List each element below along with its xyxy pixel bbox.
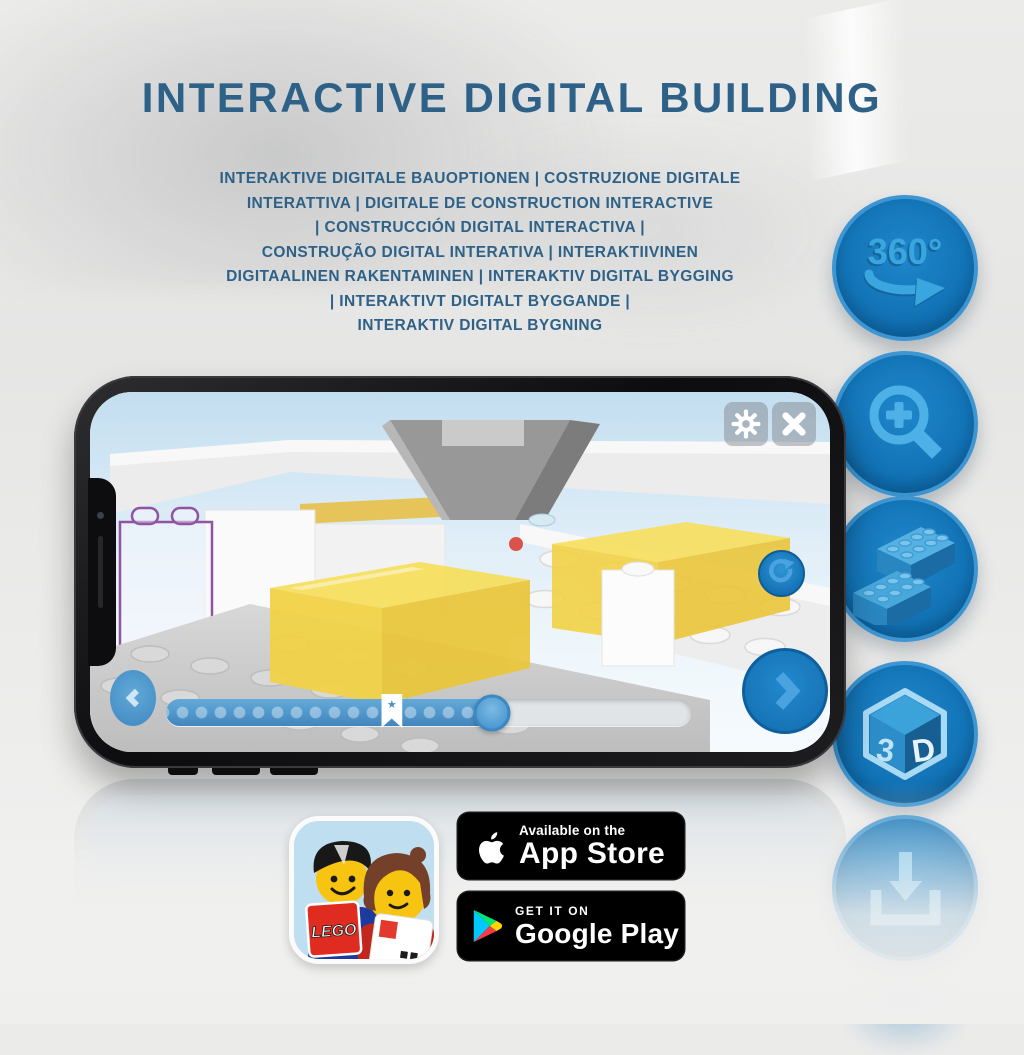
lego-app-icon: LEGO [289, 816, 439, 964]
slider-fill [166, 699, 492, 726]
subtitle-line: DIGITAALINEN RAKENTAMINEN | INTERAKTIV D… [62, 265, 898, 290]
3d-cube-icon: 3 D [850, 679, 960, 789]
app-store-badge[interactable]: Available on the App Store [458, 813, 684, 879]
subtitle-line: | CONSTRUCCIÓN DIGITAL INTERACTIVA | [62, 216, 898, 241]
subtitle-line: | INTERAKTIVT DIGITALT BYGGANDE | [62, 290, 898, 315]
phone-screen: ★ [90, 392, 830, 752]
settings-button[interactable] [724, 402, 768, 446]
camera-dot [97, 512, 104, 519]
google-play-badge[interactable]: GET IT ON Google Play [458, 892, 684, 960]
speaker-slit [98, 536, 103, 608]
previous-step-button[interactable] [110, 670, 156, 726]
subtitle-line: INTERATTIVA | DIGITALE DE CONSTRUCTION I… [62, 192, 898, 217]
svg-text:D: D [910, 731, 938, 770]
bricks-icon [849, 513, 961, 625]
phone-notch [88, 478, 116, 666]
phone-mockup: ★ [74, 376, 846, 768]
play-triangle-icon [471, 908, 503, 944]
google-play-line1: GET IT ON [515, 904, 679, 918]
lego-app-icon-art: LEGO [294, 821, 434, 959]
chevron-left-icon [120, 683, 146, 713]
subtitle-line: CONSTRUÇÃO DIGITAL INTERATIVA | INTERAKT… [62, 241, 898, 266]
subtitle-line: INTERAKTIVE DIGITALE BAUOPTIONEN | COSTR… [62, 167, 898, 192]
svg-text:LEGO: LEGO [311, 922, 358, 942]
feature-badge-bricks [832, 496, 978, 642]
app-store-line1: Available on the [519, 823, 665, 838]
next-step-button[interactable] [742, 648, 828, 734]
slider-handle[interactable] [473, 694, 510, 731]
subtitle-line: INTERAKTIV DIGITAL BYGNING [62, 314, 898, 339]
google-play-line2: Google Play [515, 919, 679, 948]
chevron-right-icon [757, 663, 813, 719]
subtitle: INTERAKTIVE DIGITALE BAUOPTIONEN | COSTR… [62, 167, 898, 339]
zoom-in-icon [855, 374, 955, 474]
build-progress-slider[interactable]: ★ [166, 699, 691, 726]
feature-badge-zoom [832, 351, 978, 497]
gear-icon [729, 407, 763, 441]
close-button[interactable] [772, 402, 816, 446]
app-store-line2: App Store [519, 839, 665, 869]
page-title: INTERACTIVE DIGITAL BUILDING [0, 74, 1024, 122]
rotate-icon [766, 558, 798, 590]
lego-3d-model-scene [90, 392, 830, 752]
apple-icon [471, 825, 507, 867]
close-icon [779, 409, 809, 439]
rotate-model-button[interactable] [758, 550, 805, 597]
